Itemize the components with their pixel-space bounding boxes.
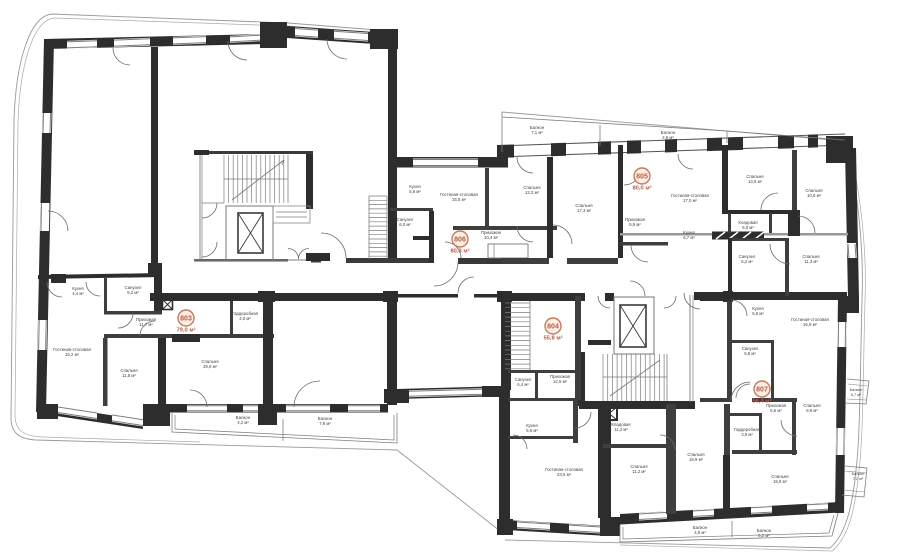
svg-text:6,0 м²: 6,0 м² [399,222,411,227]
svg-text:11,2 м²: 11,2 м² [614,427,628,432]
svg-text:5,6 м²: 5,6 м² [409,189,421,194]
svg-text:6,2 м²: 6,2 м² [758,533,770,538]
svg-text:23,5 м²: 23,5 м² [557,472,572,477]
svg-text:11,7 м²: 11,7 м² [139,322,153,327]
svg-text:19,9 м²: 19,9 м² [689,457,704,462]
svg-text:10,4 м²: 10,4 м² [484,235,499,240]
svg-text:17,0 м²: 17,0 м² [683,198,698,203]
svg-text:6,4 м²: 6,4 м² [517,382,529,387]
svg-text:80,3 м²: 80,3 м² [450,248,469,255]
svg-text:804: 804 [547,323,559,330]
svg-text:19,9 м²: 19,9 м² [203,364,218,369]
svg-text:9,9 м²: 9,9 м² [806,408,818,413]
svg-text:5,6 м²: 5,6 м² [526,428,538,433]
svg-text:56,4 м²: 56,4 м² [752,398,771,405]
svg-text:10,6 м²: 10,6 м² [807,193,822,198]
svg-text:803: 803 [180,315,192,322]
svg-text:80,0 м²: 80,0 м² [632,185,651,192]
svg-text:4,6 м²: 4,6 м² [662,135,674,140]
svg-text:79,0 м²: 79,0 м² [176,327,195,334]
svg-text:6,2 м²: 6,2 м² [741,259,753,264]
svg-text:7,1 м²: 7,1 м² [531,130,543,135]
svg-text:4,4 м²: 4,4 м² [72,291,84,296]
svg-text:4,0 м²: 4,0 м² [239,316,251,321]
svg-text:805: 805 [636,173,648,180]
svg-text:6,0 м²: 6,0 м² [742,225,754,230]
svg-text:15,2 м²: 15,2 м² [65,352,80,357]
svg-text:5,9 м²: 5,9 м² [629,222,641,227]
svg-text:11,3 м²: 11,3 м² [804,259,818,264]
svg-text:806: 806 [454,236,466,243]
svg-text:11,2 м²: 11,2 м² [632,469,646,474]
svg-text:12,5 м²: 12,5 м² [553,379,568,384]
svg-text:5,6 м²: 5,6 м² [752,311,764,316]
svg-text:13,3 м²: 13,3 м² [525,190,540,195]
svg-text:19,8 м²: 19,8 м² [773,479,788,484]
svg-text:5,6 м²: 5,6 м² [770,408,782,413]
svg-text:6,7 м²: 6,7 м² [851,393,862,397]
svg-text:15,8 м²: 15,8 м² [452,197,467,202]
svg-text:16,9 м²: 16,9 м² [803,322,818,327]
svg-text:5,2 м²: 5,2 м² [127,290,139,295]
svg-text:Балкон: Балкон [850,388,863,392]
svg-text:5,5 м²: 5,5 м² [744,351,756,356]
svg-text:4,2 м²: 4,2 м² [237,420,249,425]
svg-text:3,9 м²: 3,9 м² [741,432,753,437]
svg-text:7,2 м²: 7,2 м² [853,477,864,481]
svg-text:Балкон: Балкон [852,472,865,476]
svg-text:11,8 м²: 11,8 м² [122,373,136,378]
svg-text:55,8 м²: 55,8 м² [543,335,562,342]
svg-text:17,3 м²: 17,3 м² [577,208,592,213]
svg-text:4,9 м²: 4,9 м² [694,530,706,535]
svg-text:13,5 м²: 13,5 м² [748,179,763,184]
svg-text:7,9 м²: 7,9 м² [319,421,331,426]
svg-text:6,7 м²: 6,7 м² [683,235,695,240]
svg-text:807: 807 [756,386,768,393]
